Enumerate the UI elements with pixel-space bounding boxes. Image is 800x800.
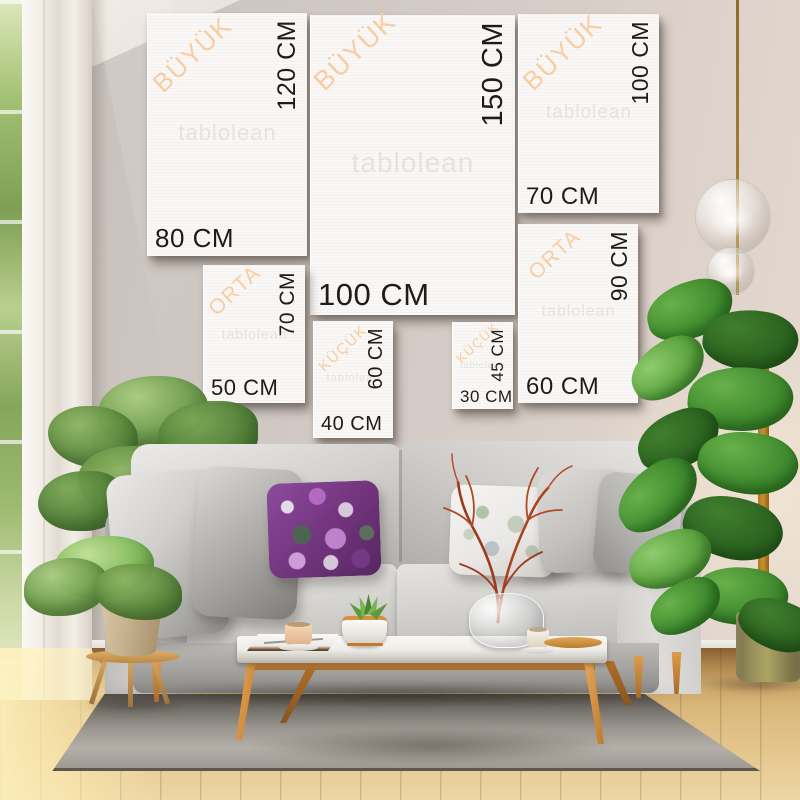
potted-bush bbox=[24, 536, 184, 624]
height-dimension-label: 45 CM bbox=[488, 329, 508, 382]
table-shadow bbox=[245, 728, 617, 764]
height-dimension-label: 120 CM bbox=[273, 20, 302, 111]
watermark-text: tablolean bbox=[314, 372, 393, 384]
sofa-seam bbox=[399, 450, 402, 562]
watermark-text: tablolean bbox=[204, 326, 305, 342]
width-dimension-label: 40 CM bbox=[321, 413, 382, 436]
width-dimension-label: 60 CM bbox=[526, 373, 599, 401]
watermark-text: tablolean bbox=[453, 360, 513, 370]
monstera-plant bbox=[628, 282, 800, 702]
size-category-label: BÜYÜK bbox=[308, 6, 403, 97]
size-category-label: BÜYÜK bbox=[516, 8, 608, 97]
size-category-label: ORTA bbox=[524, 225, 586, 285]
size-category-label: ORTA bbox=[204, 261, 266, 321]
canvas-size-guide-scene: BÜYÜK 120 CM 80 CM tablolean BÜYÜK 150 C… bbox=[0, 0, 800, 800]
watermark-text: tablolean bbox=[519, 303, 638, 321]
width-dimension-label: 100 CM bbox=[318, 277, 430, 313]
canvas-frame-70x100: BÜYÜK 100 CM 70 CM tablolean bbox=[518, 14, 659, 213]
width-dimension-label: 70 CM bbox=[526, 183, 599, 211]
width-dimension-label: 30 CM bbox=[460, 387, 513, 407]
height-dimension-label: 150 CM bbox=[477, 22, 510, 127]
canvas-frame-40x60: KÜÇÜK 60 CM 40 CM tablolean bbox=[313, 321, 393, 438]
sofa-shadow bbox=[111, 682, 686, 706]
watermark-text: tablolean bbox=[311, 147, 515, 179]
size-category-label: BÜYÜK bbox=[146, 10, 238, 99]
canvas-frame-30x45: KÜÇÜK 45 CM 30 CM tablolean bbox=[452, 322, 513, 409]
watermark-text: tablolean bbox=[148, 120, 307, 146]
foliage bbox=[94, 564, 182, 620]
canvas-frame-80x120: BÜYÜK 120 CM 80 CM tablolean bbox=[147, 13, 307, 256]
glass-globe-large bbox=[695, 179, 771, 255]
canvas-frame-100x150: BÜYÜK 150 CM 100 CM tablolean bbox=[310, 15, 515, 315]
size-category-label: KÜÇÜK bbox=[315, 322, 370, 375]
succulent-pot bbox=[342, 616, 387, 646]
coffee-cup bbox=[285, 624, 312, 647]
height-dimension-label: 100 CM bbox=[627, 21, 654, 105]
canvas-frame-60x90: ORTA 90 CM 60 CM tablolean bbox=[518, 224, 638, 403]
throw-pillow-purple-floral bbox=[266, 480, 381, 579]
window-glass bbox=[0, 0, 22, 700]
wooden-plate bbox=[544, 637, 602, 648]
width-dimension-label: 80 CM bbox=[155, 223, 234, 254]
watermark-text: tablolean bbox=[519, 102, 659, 124]
stool-leg bbox=[128, 660, 133, 707]
